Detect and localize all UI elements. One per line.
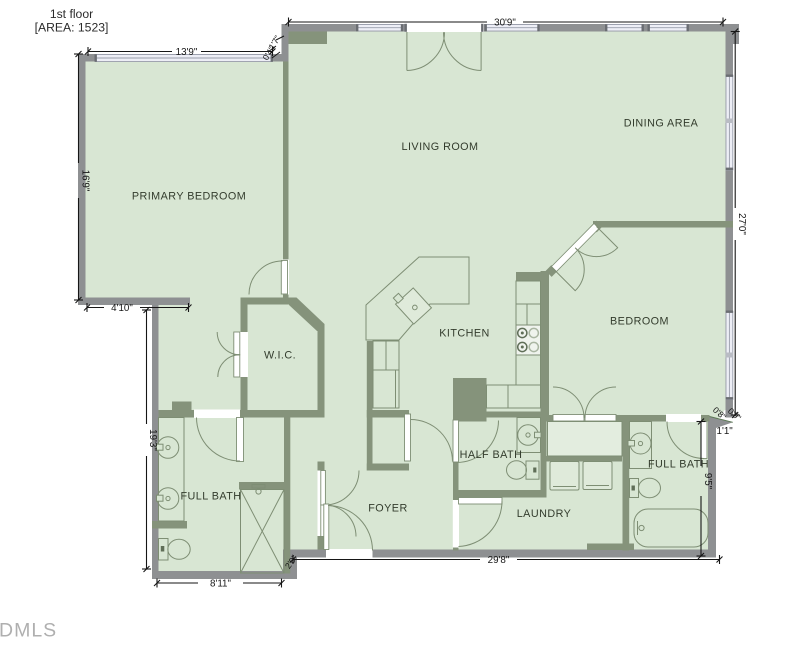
svg-text:FOYER: FOYER <box>368 503 407 515</box>
svg-text:FULL BATH: FULL BATH <box>648 459 709 471</box>
svg-text:16'9": 16'9" <box>80 170 91 192</box>
svg-text:4'10": 4'10" <box>111 303 133 314</box>
svg-text:1st floor: 1st floor <box>50 7 93 21</box>
svg-text:W.I.C.: W.I.C. <box>264 350 296 362</box>
svg-text:[AREA: 1523]: [AREA: 1523] <box>35 21 109 35</box>
svg-text:HALF BATH: HALF BATH <box>460 449 523 461</box>
svg-text:8'11": 8'11" <box>210 579 231 590</box>
svg-text:LIVING ROOM: LIVING ROOM <box>402 141 479 153</box>
svg-text:13'9": 13'9" <box>176 47 198 58</box>
svg-text:19'3": 19'3" <box>147 429 158 451</box>
svg-text:PRIMARY BEDROOM: PRIMARY BEDROOM <box>132 191 246 203</box>
svg-text:FULL BATH: FULL BATH <box>180 491 241 503</box>
svg-text:BEDROOM: BEDROOM <box>610 316 669 328</box>
svg-text:29'8": 29'8" <box>488 555 510 566</box>
svg-text:9'5": 9'5" <box>702 473 713 490</box>
svg-text:LAUNDRY: LAUNDRY <box>517 508 572 520</box>
svg-text:30'9": 30'9" <box>494 18 516 29</box>
svg-text:27'0": 27'0" <box>736 213 747 235</box>
svg-text:1'1": 1'1" <box>717 426 734 437</box>
svg-text:DMLS: DMLS <box>0 620 57 642</box>
svg-text:DINING AREA: DINING AREA <box>624 118 699 130</box>
svg-text:KITCHEN: KITCHEN <box>439 328 490 340</box>
